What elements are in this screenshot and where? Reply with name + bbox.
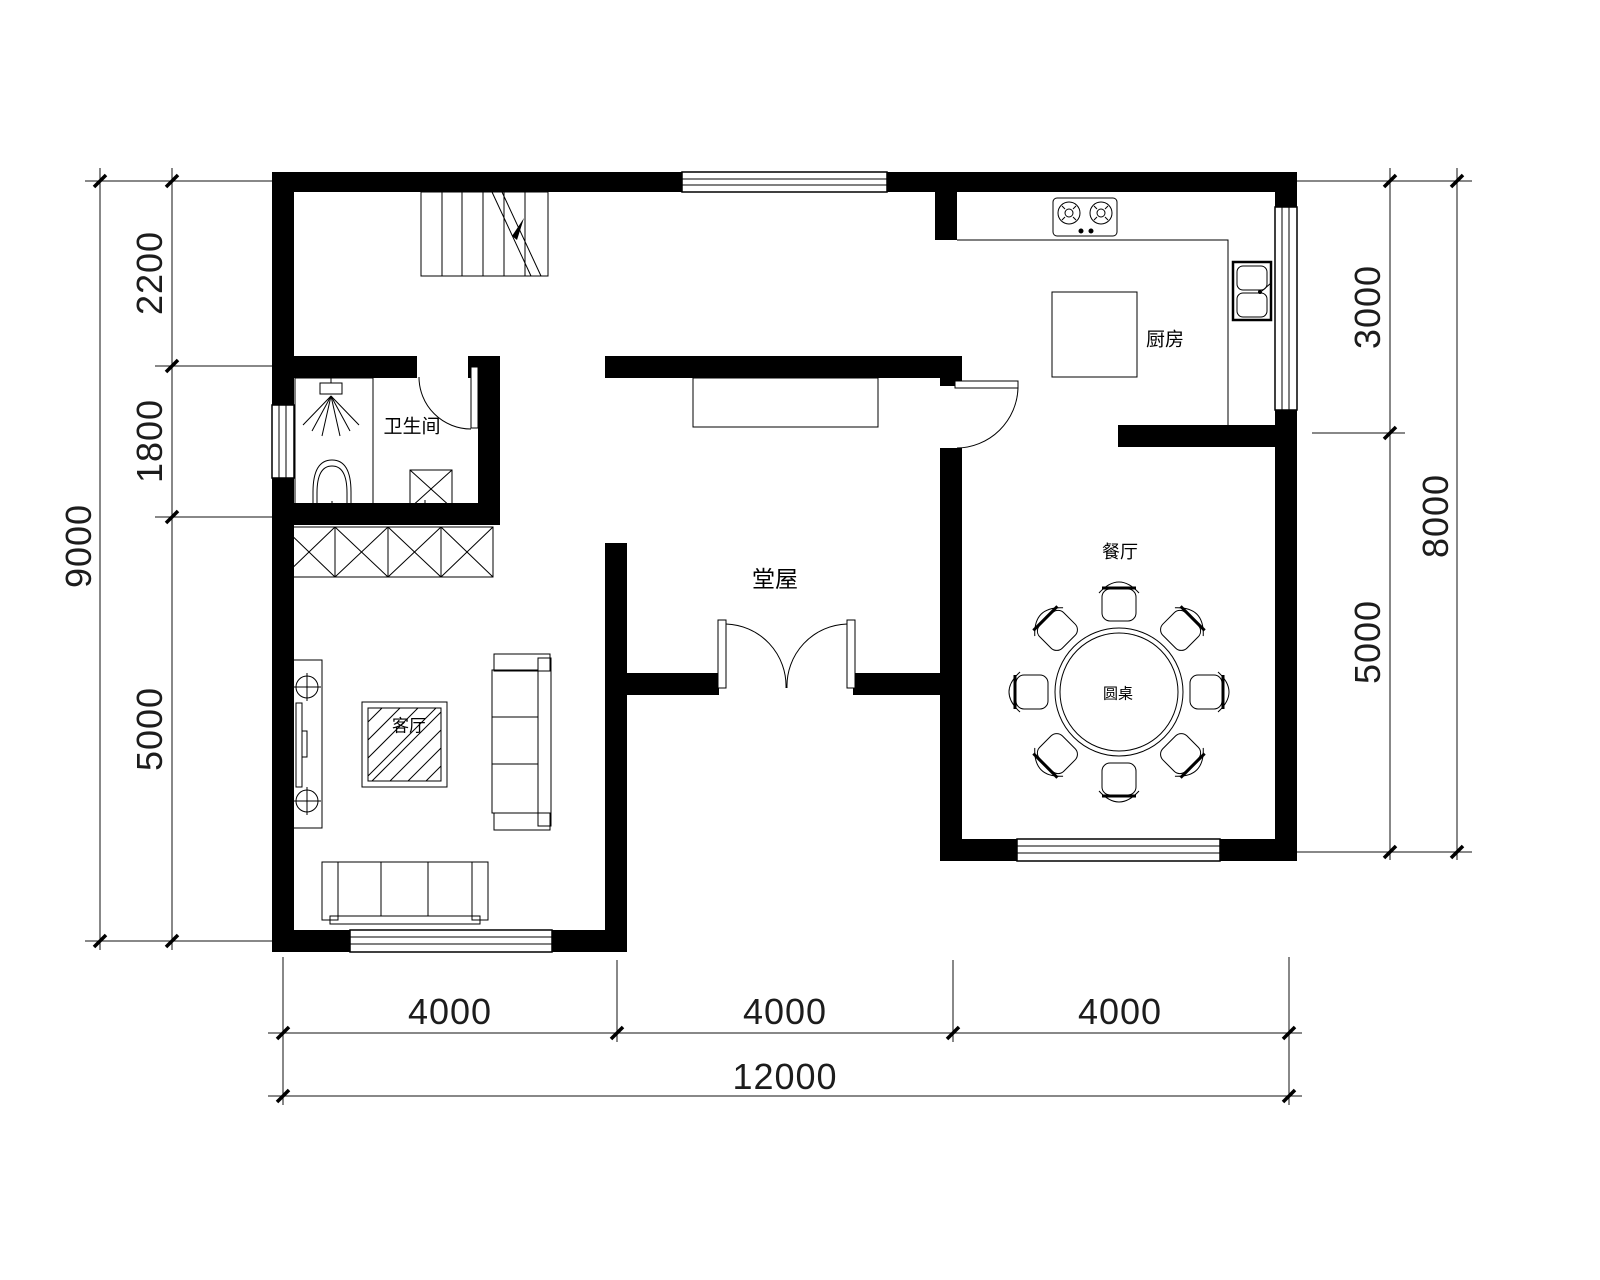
window-living-bottom xyxy=(350,930,552,952)
dim-right-total-8000: 8000 xyxy=(1415,474,1457,558)
room-label-hall: 堂屋 xyxy=(752,560,798,594)
dimension-ticks xyxy=(94,175,1463,1102)
dim-bottom-total-12000: 12000 xyxy=(732,1056,837,1098)
dim-left-total-9000: 9000 xyxy=(58,504,100,588)
window-left-wall xyxy=(272,405,294,478)
dim-left-5000: 5000 xyxy=(129,687,171,771)
stair-direction-arrow xyxy=(512,218,524,240)
floor-plan: 卫生间 厨房 堂屋 餐厅 客厅 圆桌 2200 1800 5000 9000 3… xyxy=(0,0,1600,1280)
shower-head-icon xyxy=(320,383,342,394)
room-label-living: 客厅 xyxy=(392,712,426,737)
chair-icon xyxy=(1099,582,1139,621)
sofa-horizontal xyxy=(322,862,488,924)
chair-icon xyxy=(1155,728,1211,784)
sofa-vertical xyxy=(492,654,551,830)
kitchen-door xyxy=(955,381,1018,448)
chair-icon xyxy=(1190,672,1229,712)
room-label-dining: 餐厅 xyxy=(1102,538,1138,564)
chair-icon xyxy=(1155,600,1211,656)
chair-icon xyxy=(1099,763,1139,802)
dim-right-3000: 3000 xyxy=(1347,265,1389,349)
kitchen-sink-icon xyxy=(1233,262,1271,320)
toilet-icon xyxy=(313,460,351,521)
dim-left-1800: 1800 xyxy=(129,399,171,483)
hall-sideboard xyxy=(693,378,878,427)
window-dining-bottom xyxy=(1017,839,1220,861)
chair-icon xyxy=(1009,672,1048,712)
dim-bottom-4000-b: 4000 xyxy=(743,991,827,1033)
window-top-wall xyxy=(682,172,887,192)
chair-icon xyxy=(1027,728,1083,784)
tv-cabinet xyxy=(292,660,322,828)
room-label-bathroom: 卫生间 xyxy=(383,412,440,439)
chair-icon xyxy=(1027,600,1083,656)
label-round-table: 圆桌 xyxy=(1103,683,1133,704)
dim-bottom-4000-a: 4000 xyxy=(408,991,492,1033)
closet-strip xyxy=(283,527,493,577)
entry-double-door xyxy=(718,620,855,688)
dim-right-5000: 5000 xyxy=(1347,600,1389,684)
dim-left-2200: 2200 xyxy=(129,231,171,315)
staircase xyxy=(421,192,548,276)
tv-icon xyxy=(296,703,302,787)
dimension-lines xyxy=(85,168,1472,1105)
bathroom-sink-icon xyxy=(410,470,452,510)
stove-icon xyxy=(1053,198,1117,236)
kitchen-island xyxy=(1052,292,1137,377)
kitchen-counter xyxy=(957,240,1228,425)
shower-area xyxy=(295,378,373,523)
room-label-kitchen: 厨房 xyxy=(1146,325,1184,352)
dim-bottom-4000-c: 4000 xyxy=(1078,991,1162,1033)
window-kitchen-right-wall xyxy=(1275,207,1297,410)
